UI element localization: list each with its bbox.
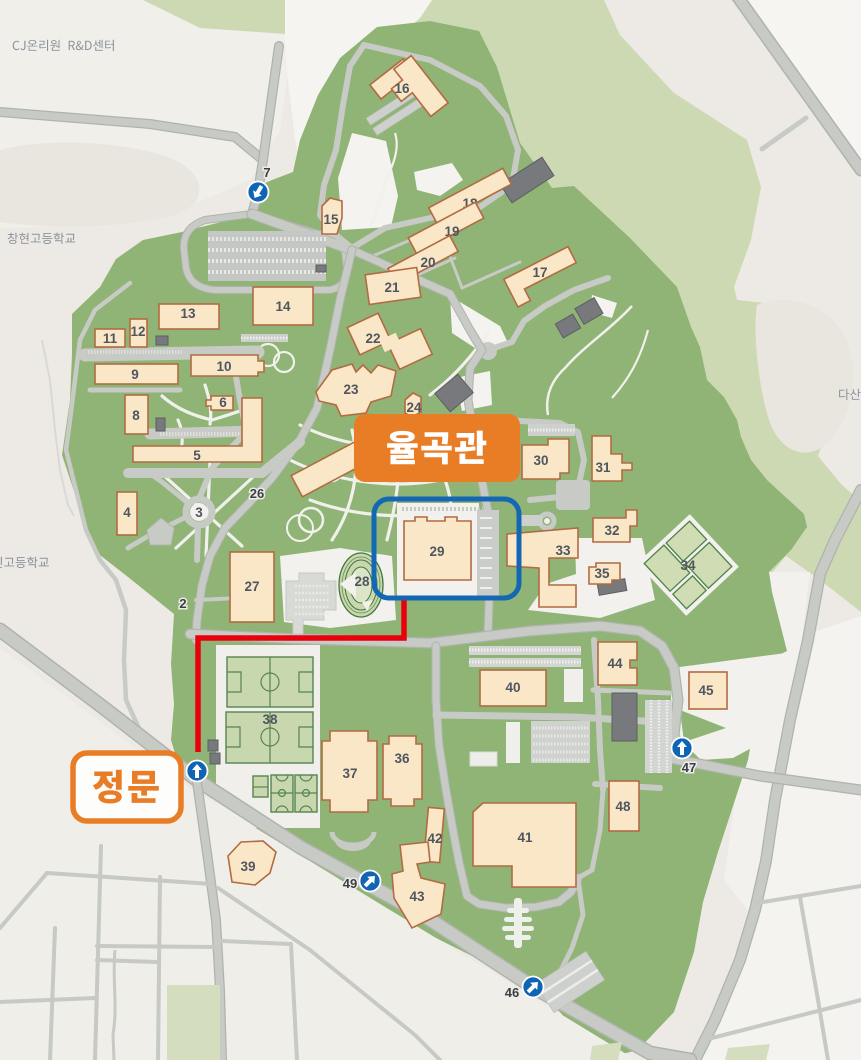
svg-text:13: 13 (180, 306, 196, 321)
svg-text:2: 2 (179, 596, 186, 611)
svg-text:7: 7 (263, 165, 270, 180)
svg-text:27: 27 (244, 579, 259, 594)
svg-text:45: 45 (698, 683, 714, 698)
svg-text:8: 8 (132, 408, 140, 423)
svg-text:34: 34 (680, 558, 696, 573)
svg-text:32: 32 (604, 523, 619, 538)
svg-text:11: 11 (103, 331, 118, 346)
svg-text:42: 42 (427, 831, 442, 846)
svg-text:6: 6 (219, 395, 227, 410)
svg-text:4: 4 (123, 505, 131, 520)
svg-text:14: 14 (275, 299, 291, 314)
svg-text:17: 17 (532, 265, 547, 280)
svg-text:15: 15 (323, 212, 339, 227)
svg-text:47: 47 (682, 760, 696, 775)
svg-text:20: 20 (420, 255, 435, 270)
svg-text:49: 49 (343, 876, 357, 891)
svg-text:38: 38 (262, 712, 278, 727)
svg-text:3: 3 (195, 505, 203, 520)
svg-text:24: 24 (406, 400, 422, 415)
svg-text:12: 12 (130, 324, 145, 339)
svg-text:36: 36 (394, 751, 410, 766)
svg-text:37: 37 (342, 766, 357, 781)
svg-text:48: 48 (615, 799, 631, 814)
svg-text:9: 9 (131, 367, 139, 382)
svg-text:33: 33 (555, 543, 571, 558)
svg-text:26: 26 (250, 486, 264, 501)
svg-text:46: 46 (505, 985, 519, 1000)
svg-text:43: 43 (409, 889, 425, 904)
svg-text:41: 41 (517, 830, 533, 845)
svg-text:10: 10 (216, 359, 231, 374)
svg-text:28: 28 (354, 574, 370, 589)
svg-text:29: 29 (429, 544, 444, 559)
svg-text:35: 35 (594, 566, 610, 581)
svg-text:30: 30 (533, 453, 548, 468)
svg-text:21: 21 (384, 280, 400, 295)
svg-text:16: 16 (394, 81, 410, 96)
svg-text:5: 5 (193, 448, 201, 463)
svg-text:44: 44 (607, 656, 623, 671)
svg-text:31: 31 (595, 460, 611, 475)
svg-text:22: 22 (365, 331, 380, 346)
svg-text:23: 23 (343, 382, 359, 397)
svg-text:40: 40 (505, 680, 520, 695)
svg-text:39: 39 (240, 859, 255, 874)
